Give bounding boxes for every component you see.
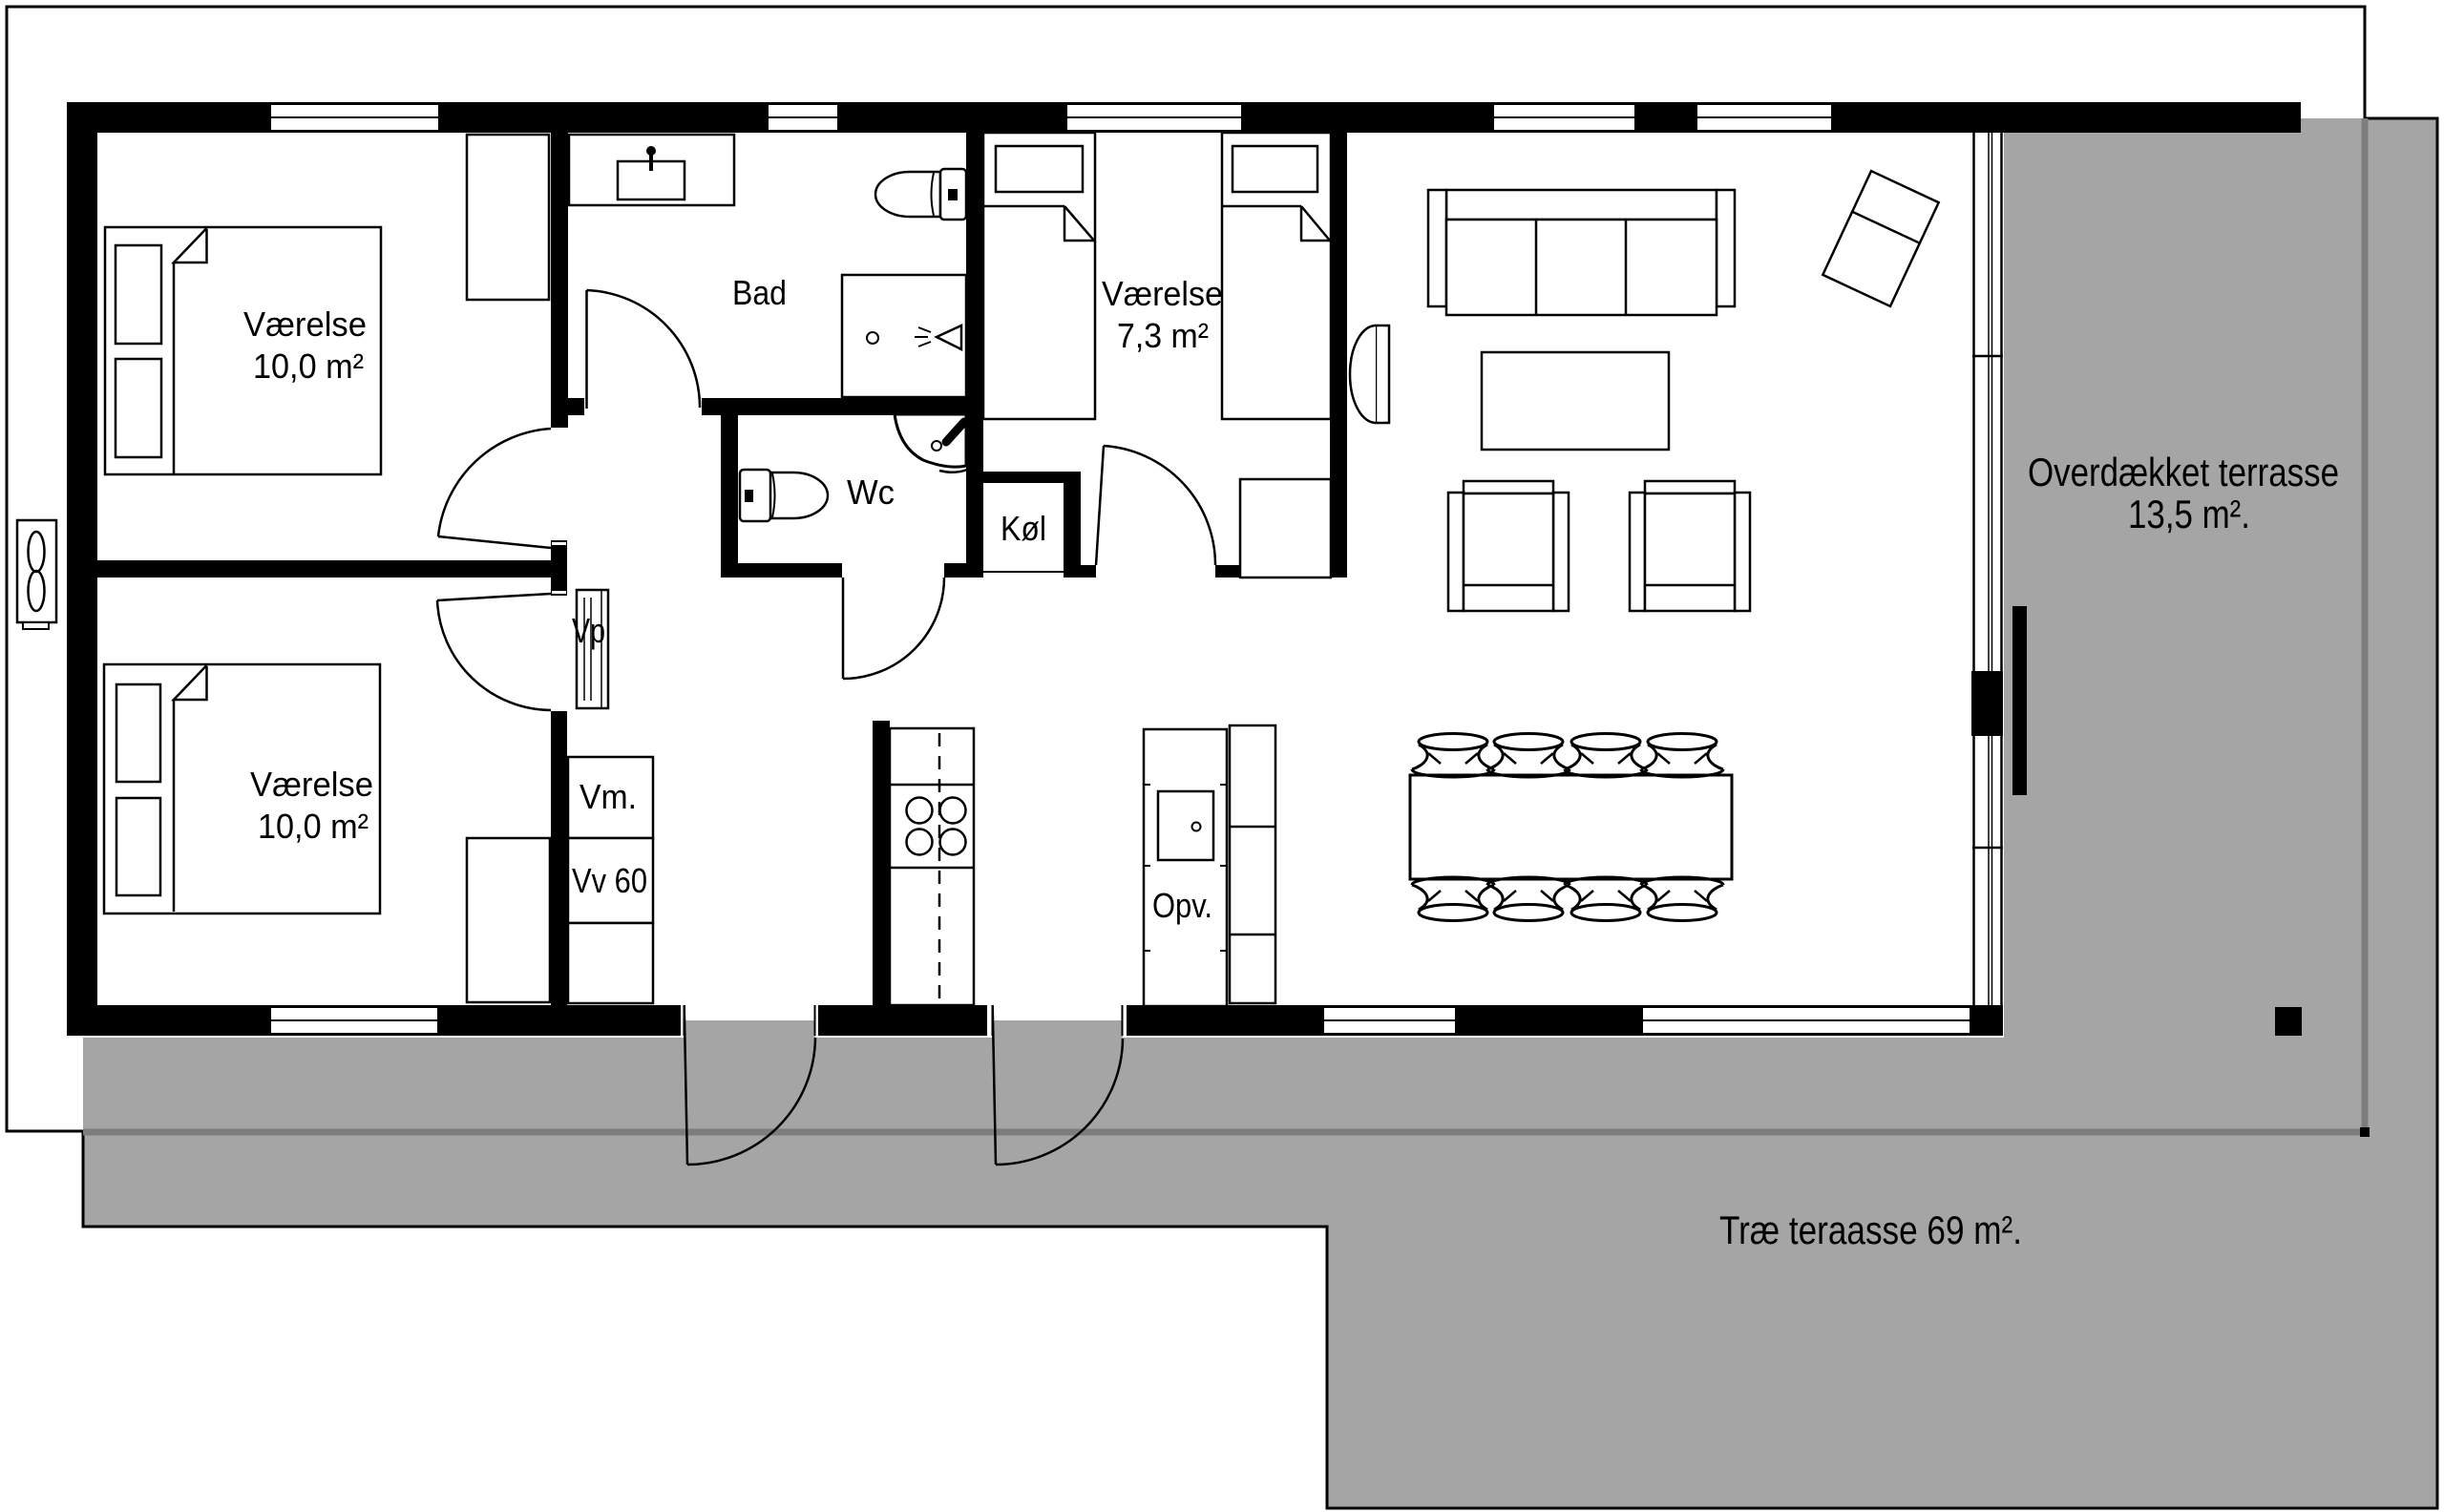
svg-text:Vv 60: Vv 60 — [572, 861, 647, 900]
svg-text:Køl: Køl — [1001, 509, 1046, 548]
svg-text:Wc: Wc — [847, 472, 895, 512]
svg-text:Værelse: Værelse — [250, 765, 373, 804]
svg-text:13,5 m².: 13,5 m². — [2128, 492, 2250, 536]
svg-text:10,0 m²: 10,0 m² — [253, 346, 364, 386]
svg-text:Bad: Bad — [732, 273, 787, 312]
svg-text:Vm.: Vm. — [579, 777, 637, 816]
svg-text:Værelse: Værelse — [243, 304, 367, 344]
svg-text:Overdækket terrasse: Overdækket terrasse — [2028, 450, 2339, 494]
svg-text:10,0 m²: 10,0 m² — [258, 807, 369, 846]
svg-text:Opv.: Opv. — [1152, 886, 1212, 925]
svg-text:Vp: Vp — [572, 611, 605, 650]
svg-text:Værelse: Værelse — [1102, 274, 1223, 313]
svg-text:7,3 m²: 7,3 m² — [1117, 316, 1209, 355]
svg-text:Træ teraasse 69 m².: Træ teraasse 69 m². — [1719, 1207, 2022, 1252]
